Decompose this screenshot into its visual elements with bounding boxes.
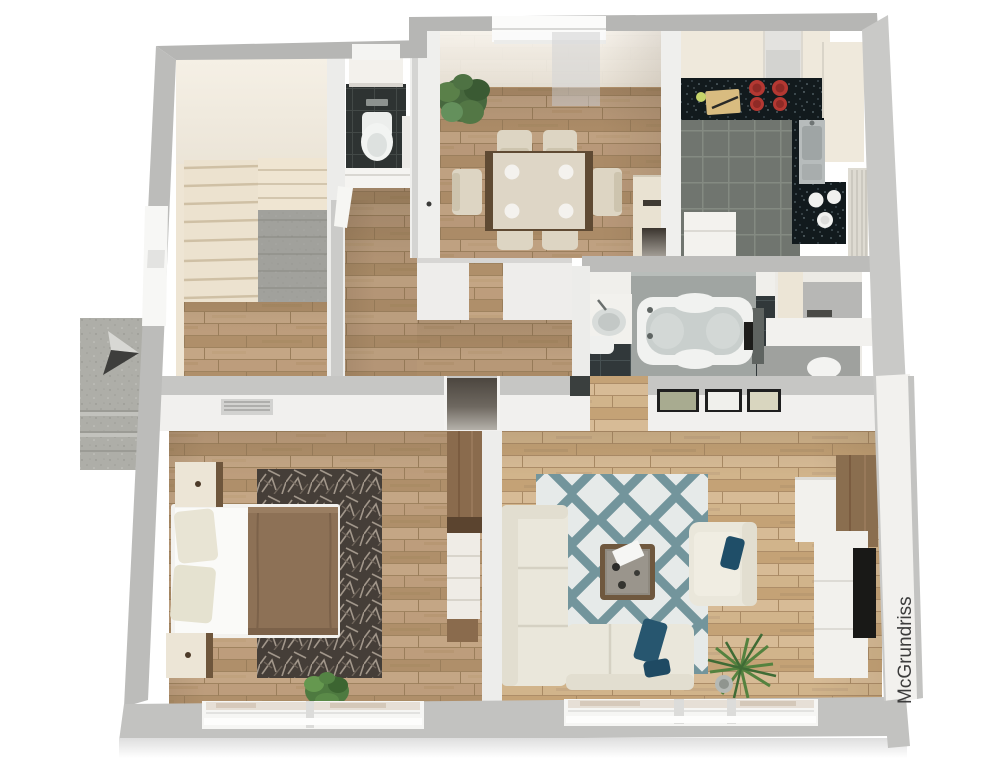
svg-text:McGrundriss: McGrundriss: [895, 596, 916, 704]
